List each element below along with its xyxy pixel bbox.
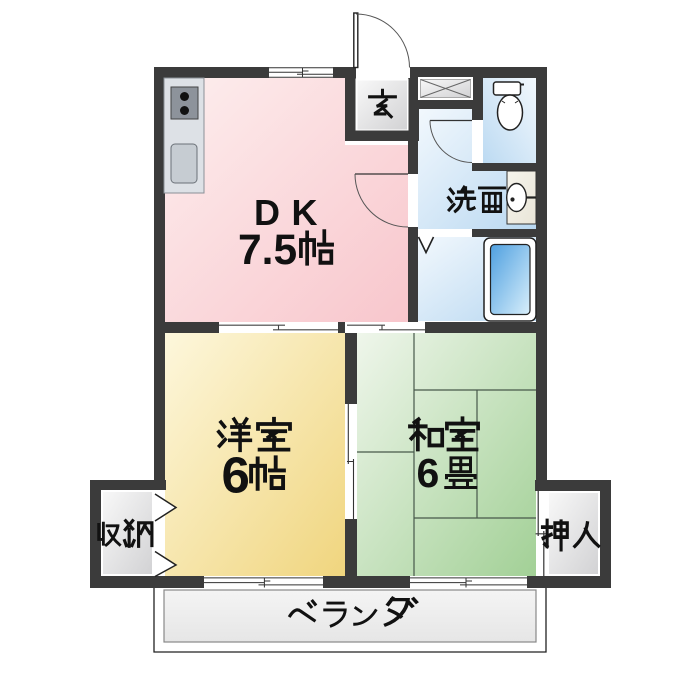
svg-text:6: 6: [417, 450, 440, 496]
svg-text:6: 6: [222, 447, 250, 504]
svg-text:7.5: 7.5: [238, 227, 297, 274]
